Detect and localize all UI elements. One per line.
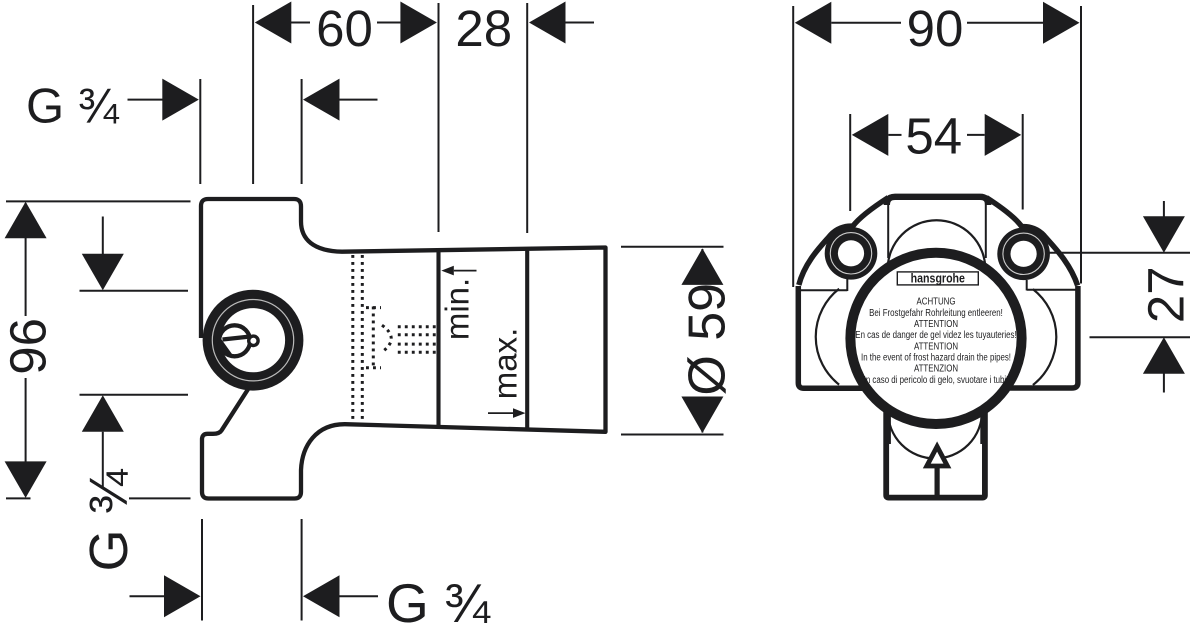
svg-text:hansgrohe: hansgrohe [911, 272, 966, 286]
svg-text:ATTENTION: ATTENTION [914, 340, 958, 351]
svg-text:G ¾: G ¾ [79, 469, 139, 572]
svg-text:90: 90 [907, 0, 964, 57]
svg-text:60: 60 [316, 0, 373, 57]
svg-text:ATTENZION: ATTENZION [914, 363, 958, 374]
svg-text:min.: min. [439, 278, 476, 340]
svg-text:Bei Frostgefahr Rohrleitung en: Bei Frostgefahr Rohrleitung entleeren! [869, 307, 1003, 318]
svg-text:96: 96 [0, 318, 56, 375]
svg-text:G ¾: G ¾ [26, 80, 120, 134]
svg-text:G ¾: G ¾ [386, 572, 491, 634]
svg-text:In the event of frost hazard d: In the event of frost hazard drain the p… [861, 351, 1011, 362]
svg-text:ATTENTION: ATTENTION [914, 318, 958, 329]
svg-text:En cas de danger de gel videz: En cas de danger de gel videz les tuyaut… [855, 329, 1016, 340]
svg-text:In caso di pericolo di gelo, s: In caso di pericolo di gelo, svuotare i … [864, 374, 1009, 385]
svg-text:28: 28 [455, 0, 512, 57]
svg-text:Ø 59: Ø 59 [679, 283, 737, 396]
svg-text:max.: max. [487, 328, 524, 400]
svg-text:54: 54 [905, 108, 962, 165]
svg-text:ACHTUNG: ACHTUNG [916, 296, 955, 307]
svg-text:27: 27 [1138, 266, 1195, 323]
